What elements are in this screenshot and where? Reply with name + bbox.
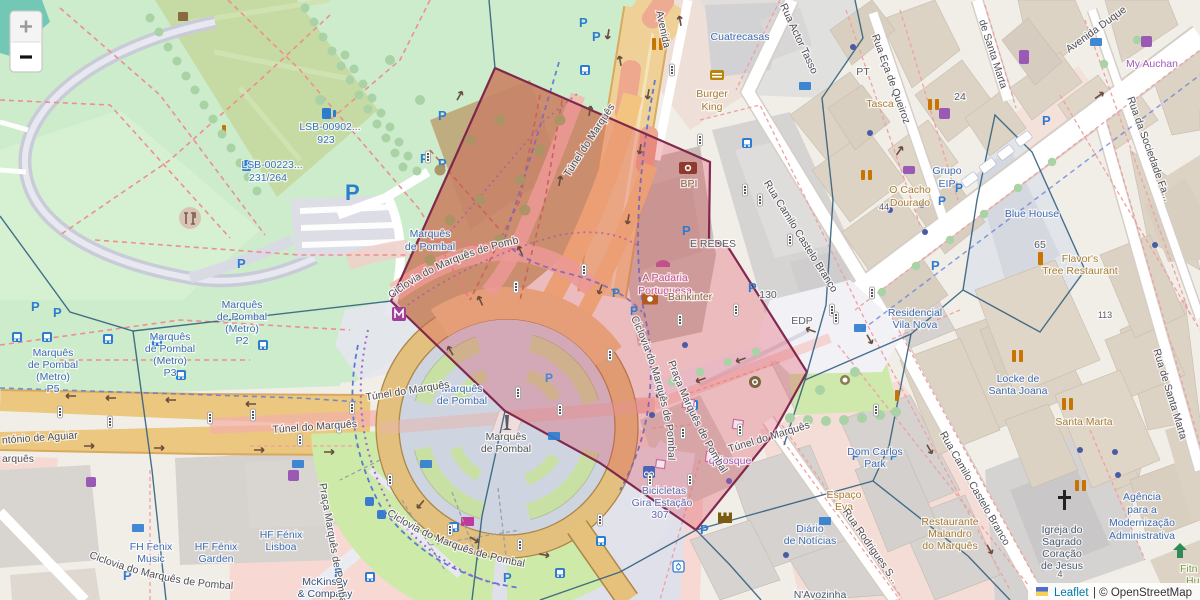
svg-text:(Metro): (Metro)	[153, 355, 187, 367]
svg-text:P3: P3	[164, 367, 177, 379]
svg-text:EIP: EIP	[939, 178, 956, 190]
svg-text:P: P	[955, 181, 963, 195]
svg-text:Marquês: Marquês	[222, 299, 263, 311]
svg-text:Marquês: Marquês	[486, 431, 527, 443]
svg-text:PT: PT	[856, 66, 870, 78]
svg-text:P: P	[938, 194, 946, 208]
svg-text:Dourado: Dourado	[890, 197, 930, 209]
svg-text:44: 44	[879, 202, 889, 212]
svg-text:Modernização: Modernização	[1109, 517, 1175, 529]
svg-text:P: P	[612, 286, 620, 300]
svg-text:Espaço: Espaço	[826, 489, 861, 501]
svg-text:de Jesus: de Jesus	[1041, 560, 1083, 572]
svg-text:Bicicletas: Bicicletas	[642, 485, 686, 497]
svg-text:Restaurante: Restaurante	[921, 516, 978, 528]
svg-text:Agência: Agência	[1123, 491, 1161, 503]
svg-text:P: P	[682, 223, 691, 238]
svg-text:(Metro): (Metro)	[225, 323, 259, 335]
svg-text:Bankinter: Bankinter	[668, 291, 713, 303]
svg-text:LSB-00223...: LSB-00223...	[241, 159, 302, 171]
svg-text:Burger: Burger	[696, 88, 728, 100]
svg-text:O Cacho: O Cacho	[889, 184, 931, 196]
svg-text:P: P	[345, 180, 360, 205]
svg-text:E REDES: E REDES	[690, 238, 736, 250]
svg-text:P: P	[931, 258, 940, 273]
svg-text:do Marquês: do Marquês	[922, 540, 977, 552]
svg-text:EDP: EDP	[791, 315, 813, 327]
svg-text:| © OpenStreetMap: | © OpenStreetMap	[1093, 587, 1192, 599]
svg-text:de Pombal: de Pombal	[28, 359, 78, 371]
svg-text:FH Fenix: FH Fenix	[130, 541, 173, 553]
svg-text:P: P	[31, 299, 40, 314]
svg-text:P: P	[579, 15, 588, 30]
svg-text:P: P	[53, 305, 62, 320]
svg-text:Tree Restaurant: Tree Restaurant	[1042, 265, 1118, 277]
svg-text:113: 113	[1098, 310, 1112, 320]
svg-text:Flavor's: Flavor's	[1062, 253, 1098, 265]
svg-text:65: 65	[1034, 239, 1046, 251]
svg-text:Marquês: Marquês	[150, 331, 191, 343]
svg-text:King: King	[701, 101, 722, 113]
svg-text:de Pombal: de Pombal	[437, 395, 487, 407]
svg-text:de Pombal: de Pombal	[217, 311, 267, 323]
svg-text:HF Fénix: HF Fénix	[195, 541, 238, 553]
svg-text:Malandro: Malandro	[928, 528, 972, 540]
svg-text:HF Fénix: HF Fénix	[260, 529, 303, 541]
svg-text:Vila Nova: Vila Nova	[893, 319, 938, 331]
svg-text:Leaflet: Leaflet	[1054, 587, 1089, 599]
svg-text:Coração: Coração	[1042, 548, 1082, 560]
svg-text:Fitn: Fitn	[1180, 563, 1198, 575]
svg-text:Locke de: Locke de	[997, 373, 1040, 385]
svg-text:LSB-00902...: LSB-00902...	[299, 121, 360, 133]
svg-text:Grupo: Grupo	[932, 165, 961, 177]
svg-text:Cuatrecasas: Cuatrecasas	[711, 31, 770, 43]
svg-text:(Metro): (Metro)	[36, 371, 70, 383]
svg-text:Tasca: Tasca	[866, 98, 894, 110]
svg-text:Dom Carlos: Dom Carlos	[847, 446, 902, 458]
svg-text:P: P	[545, 371, 553, 385]
svg-text:Diário: Diário	[796, 523, 824, 535]
svg-text:Santa Joana: Santa Joana	[989, 385, 1048, 397]
svg-text:Music: Music	[137, 553, 164, 565]
svg-text:Gira Estação: Gira Estação	[632, 497, 693, 509]
svg-text:para a: para a	[1127, 504, 1157, 516]
svg-text:307: 307	[651, 509, 669, 521]
svg-text:N'Avozinha: N'Avozinha	[794, 589, 847, 600]
svg-text:P: P	[592, 29, 601, 44]
svg-text:arquês: arquês	[2, 453, 34, 465]
svg-text:231/264: 231/264	[249, 172, 287, 184]
svg-text:P2: P2	[236, 335, 249, 347]
svg-text:Garden: Garden	[198, 553, 233, 565]
svg-text:de Pombal: de Pombal	[481, 443, 531, 455]
svg-text:P: P	[237, 256, 246, 271]
svg-text:Santa Marta: Santa Marta	[1055, 416, 1112, 428]
svg-text:Park: Park	[864, 458, 886, 470]
svg-text:A Padaria: A Padaria	[642, 272, 688, 284]
svg-text:P: P	[438, 108, 447, 123]
svg-text:Lisboa: Lisboa	[266, 541, 297, 553]
svg-text:130: 130	[759, 289, 777, 301]
svg-text:P: P	[748, 280, 757, 295]
svg-text:923: 923	[317, 134, 335, 146]
svg-text:Marquês: Marquês	[33, 347, 74, 359]
svg-text:24: 24	[954, 91, 966, 103]
svg-text:Sagrado: Sagrado	[1042, 536, 1082, 548]
svg-text:de Notícias: de Notícias	[784, 535, 837, 547]
svg-text:P: P	[503, 570, 512, 585]
svg-text:de Pombal: de Pombal	[145, 343, 195, 355]
svg-text:P: P	[1042, 113, 1051, 128]
svg-text:Igreja do: Igreja do	[1042, 524, 1083, 536]
svg-text:BPI: BPI	[681, 178, 698, 190]
svg-text:Marquês: Marquês	[410, 228, 451, 240]
svg-text:My Auchan: My Auchan	[1126, 58, 1178, 70]
svg-text:Administrativa: Administrativa	[1109, 530, 1175, 542]
svg-text:P5: P5	[47, 383, 60, 395]
svg-text:P: P	[700, 522, 709, 537]
svg-text:de Pombal: de Pombal	[405, 241, 455, 253]
svg-text:Residencial: Residencial	[888, 307, 942, 319]
svg-text:Blue House: Blue House	[1005, 208, 1059, 220]
